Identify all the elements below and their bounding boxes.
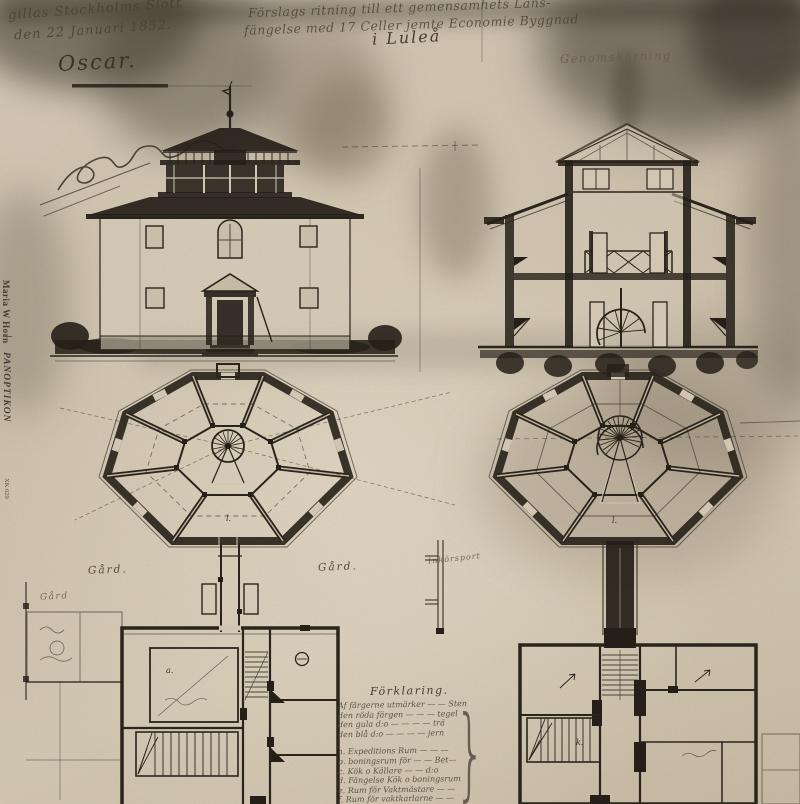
plan-right <box>489 364 747 637</box>
legend-block: Förklaring. Af färgerne utmärker — — Ste… <box>338 684 483 804</box>
faint-outbuilding <box>762 734 800 804</box>
section-drawing <box>478 124 758 377</box>
elevation-drawing <box>50 81 402 361</box>
stem-corridor-left <box>202 543 258 632</box>
house-plan-left <box>27 612 338 804</box>
house-stair <box>527 718 600 762</box>
corridor-stair <box>245 652 268 700</box>
plan-left <box>60 364 455 632</box>
main-stair <box>136 732 238 776</box>
legend-title: Förklaring. <box>370 683 483 698</box>
album-art-scan: gillas Stockholms Slott den 22 Januari 1… <box>0 0 800 804</box>
central-spiral-stair <box>597 380 643 503</box>
legend-line: den blå d:o — — — — jern <box>338 728 483 740</box>
legend-line: f. Rum för vaktkarlarne — — <box>338 793 483 804</box>
house-plan-right <box>520 628 800 804</box>
cell-doors <box>174 423 281 497</box>
central-spiral-stair <box>210 430 246 484</box>
stem-corridor-right <box>603 541 637 637</box>
scale-bar <box>72 84 252 88</box>
corridor-stair <box>602 650 638 700</box>
faint-annex <box>27 612 122 682</box>
